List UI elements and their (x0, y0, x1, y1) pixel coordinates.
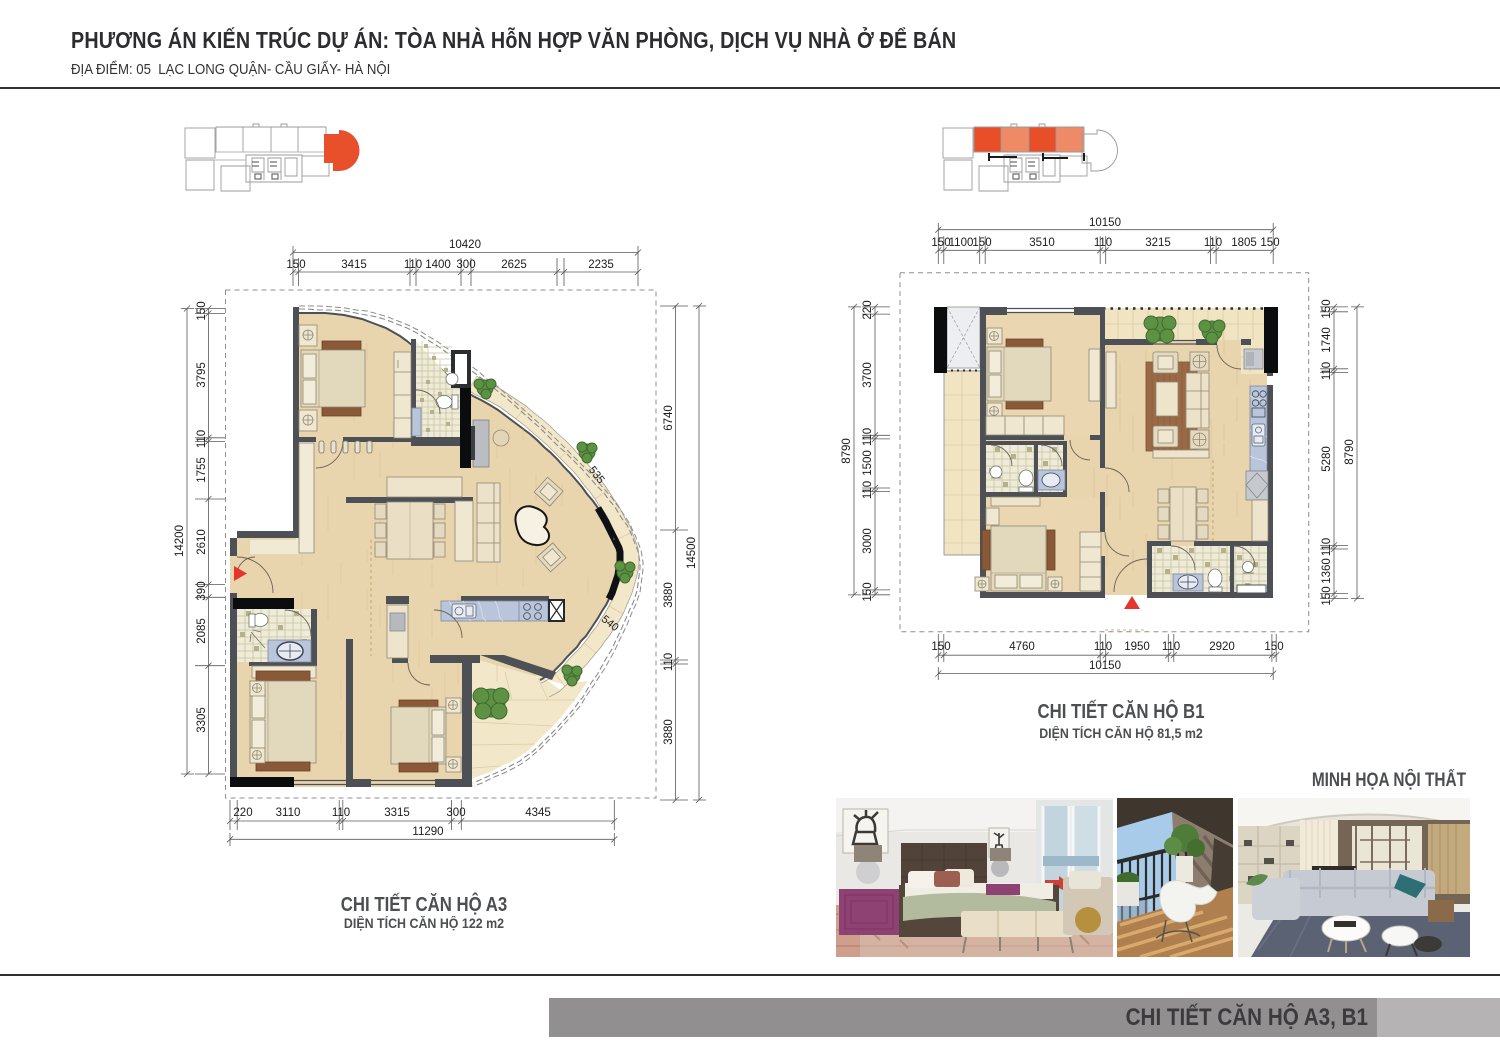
svg-text:2085: 2085 (196, 618, 208, 644)
svg-text:2625: 2625 (501, 259, 527, 271)
svg-text:3795: 3795 (196, 362, 208, 388)
svg-text:150: 150 (1264, 641, 1283, 653)
svg-text:110: 110 (196, 430, 208, 448)
svg-text:220: 220 (233, 807, 252, 819)
svg-text:110: 110 (1321, 362, 1333, 380)
svg-text:300: 300 (456, 259, 475, 271)
svg-text:8790: 8790 (841, 438, 853, 464)
svg-text:3880: 3880 (663, 719, 675, 745)
svg-text:220: 220 (862, 300, 874, 319)
svg-text:110: 110 (404, 259, 422, 271)
svg-text:1360: 1360 (1321, 558, 1333, 584)
svg-text:150: 150 (286, 259, 305, 271)
svg-text:1100: 1100 (949, 237, 974, 249)
svg-text:110: 110 (1094, 237, 1112, 249)
svg-text:2920: 2920 (1209, 641, 1235, 653)
svg-text:3415: 3415 (341, 259, 367, 271)
svg-text:14500: 14500 (686, 537, 698, 569)
svg-text:110: 110 (1162, 641, 1180, 653)
svg-text:1740: 1740 (1321, 327, 1333, 353)
svg-text:14200: 14200 (174, 525, 186, 557)
svg-text:10420: 10420 (449, 239, 481, 251)
svg-text:110: 110 (862, 428, 874, 446)
svg-text:11290: 11290 (412, 826, 443, 838)
svg-text:390: 390 (196, 581, 208, 600)
svg-text:3510: 3510 (1029, 237, 1055, 249)
svg-text:10150: 10150 (1089, 660, 1121, 672)
svg-text:1755: 1755 (196, 457, 208, 483)
svg-text:1805: 1805 (1231, 237, 1257, 249)
svg-text:110: 110 (1094, 641, 1112, 653)
svg-text:300: 300 (446, 807, 465, 819)
svg-text:110: 110 (862, 481, 874, 499)
svg-text:4760: 4760 (1009, 641, 1035, 653)
svg-text:110: 110 (663, 653, 675, 671)
svg-text:3000: 3000 (862, 528, 874, 554)
svg-text:3110: 3110 (276, 807, 301, 819)
svg-text:2235: 2235 (588, 259, 614, 271)
svg-text:3315: 3315 (384, 807, 410, 819)
svg-text:150: 150 (1321, 299, 1333, 318)
svg-text:150: 150 (972, 237, 991, 249)
svg-text:5280: 5280 (1321, 446, 1333, 472)
svg-text:10150: 10150 (1089, 217, 1121, 229)
svg-text:1400: 1400 (425, 259, 451, 271)
svg-text:3880: 3880 (663, 582, 675, 608)
svg-text:3215: 3215 (1145, 237, 1171, 249)
svg-text:150: 150 (1321, 586, 1333, 605)
svg-text:4345: 4345 (525, 807, 551, 819)
svg-text:6740: 6740 (663, 405, 675, 431)
svg-text:3700: 3700 (862, 362, 874, 388)
svg-text:150: 150 (1260, 237, 1279, 249)
svg-text:1500: 1500 (862, 450, 874, 476)
svg-text:110: 110 (1321, 538, 1333, 556)
svg-text:1950: 1950 (1124, 641, 1150, 653)
svg-text:2610: 2610 (196, 529, 208, 555)
svg-text:8790: 8790 (1344, 439, 1356, 465)
svg-text:3305: 3305 (196, 707, 208, 733)
svg-text:150: 150 (196, 301, 208, 320)
svg-text:150: 150 (931, 641, 950, 653)
svg-text:110: 110 (1204, 237, 1222, 249)
svg-text:150: 150 (862, 582, 874, 601)
svg-text:110: 110 (332, 807, 350, 819)
